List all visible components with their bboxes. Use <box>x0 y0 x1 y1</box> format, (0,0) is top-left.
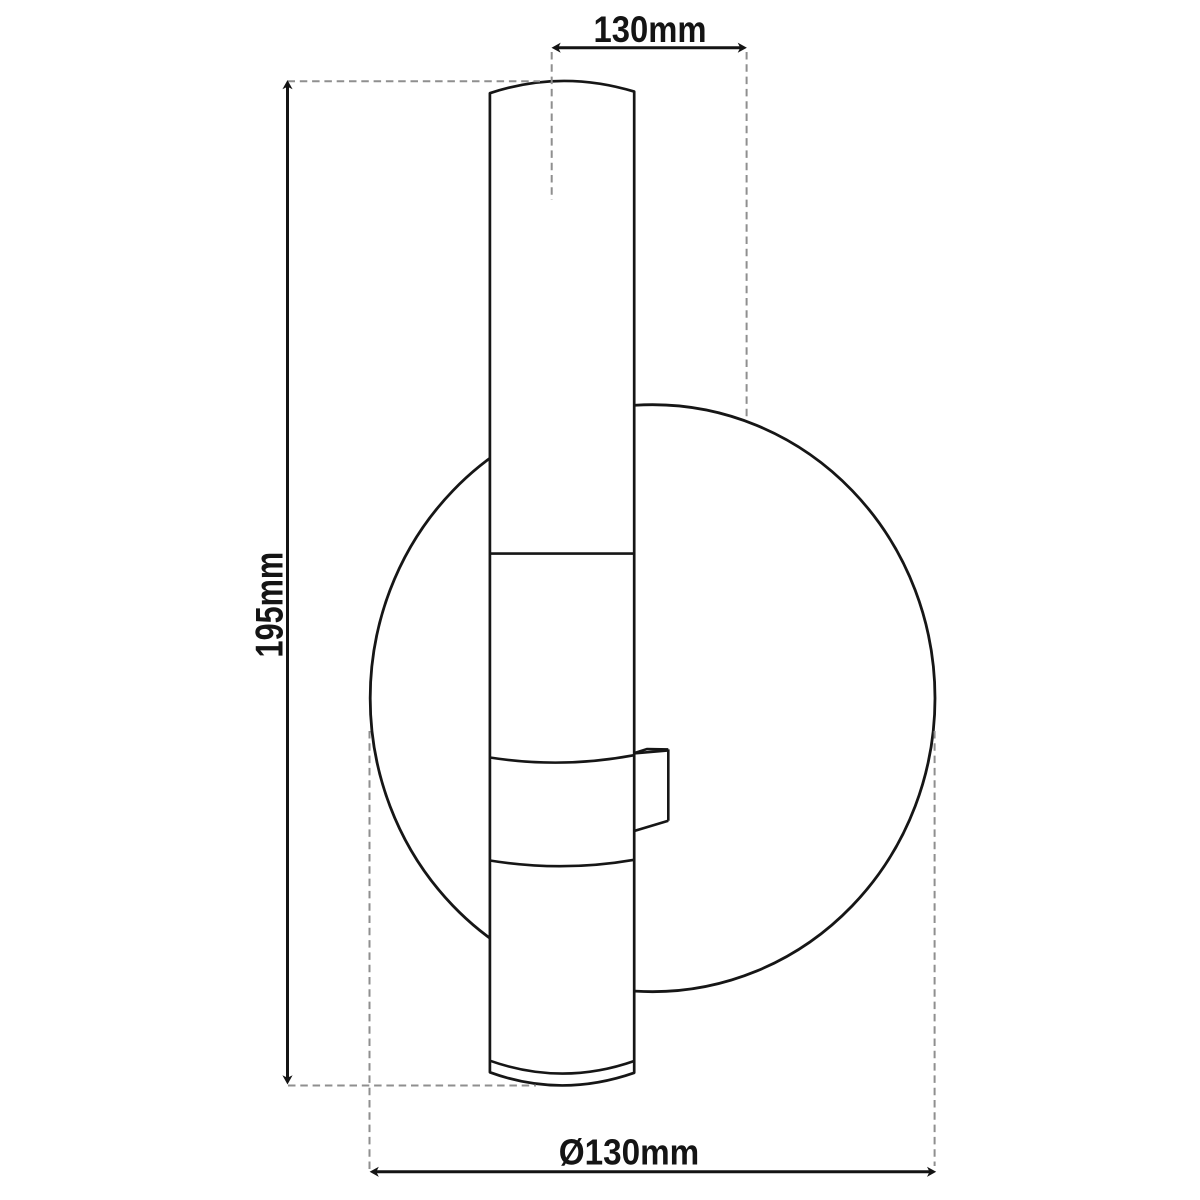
svg-text:130mm: 130mm <box>594 9 707 50</box>
svg-text:Ø130mm: Ø130mm <box>559 1131 700 1172</box>
svg-text:195mm: 195mm <box>249 552 292 658</box>
